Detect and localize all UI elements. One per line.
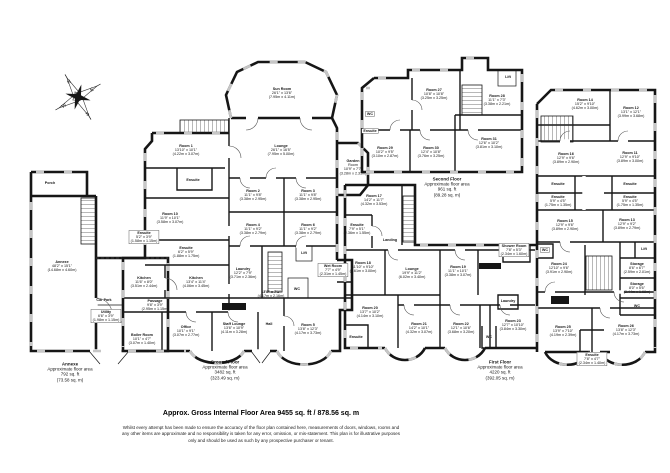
ground-floor-plan [123,62,368,365]
disclaimer-text: Whilst every attempt has been made to en… [121,425,401,444]
second-floor-plan [362,58,522,172]
annexe-plan [31,172,168,364]
floorplan-drawing: N E S W [0,0,670,473]
compass-rose: N E S W [42,61,113,132]
floorplan-page: N E S W [0,0,670,473]
compass-south-label: S [85,111,91,118]
total-area-title: Approx. Gross Internal Floor Area 9455 s… [127,410,395,417]
